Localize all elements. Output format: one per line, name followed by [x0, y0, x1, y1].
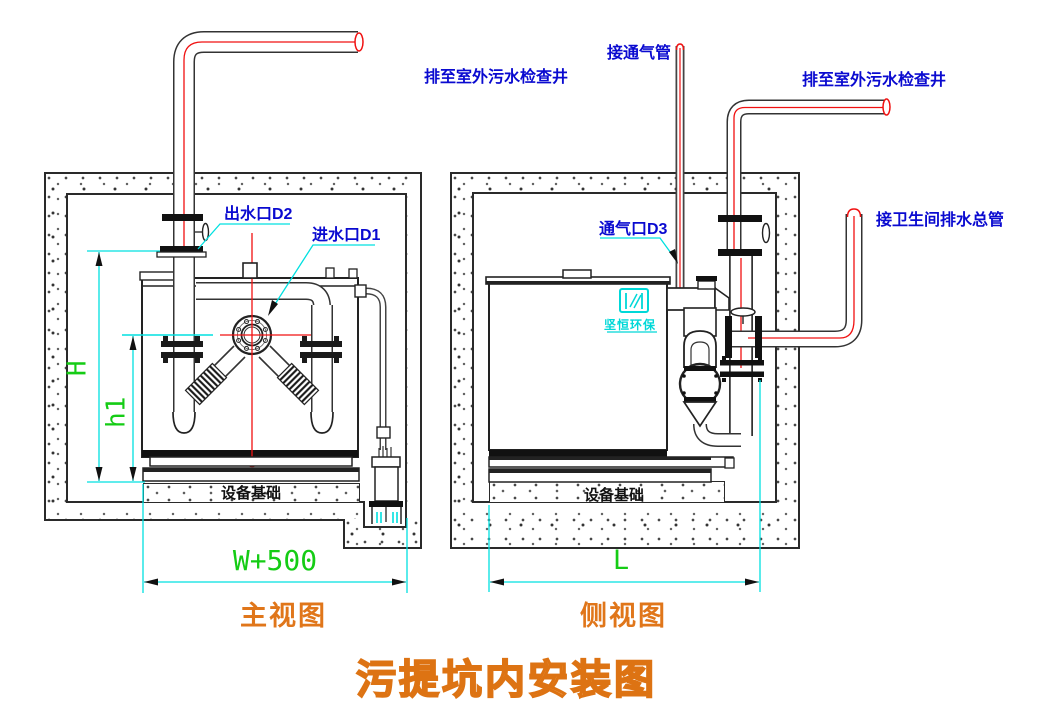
dim-h1-label: h1 — [103, 390, 132, 434]
front-inlet-label: 进水口D1 — [312, 227, 380, 245]
front-sump-pump — [355, 285, 403, 524]
side-foundation-label: 设备基础 — [584, 488, 644, 505]
side-valve-assembly — [667, 276, 729, 426]
drawing-title: 污提坑内安装图 — [356, 658, 657, 702]
dim-H-label: H — [64, 346, 93, 390]
brand-logo-text: 坚恒环保 — [604, 316, 656, 333]
side-vent-pipe — [677, 44, 684, 308]
front-outlet-label: 出水口D2 — [224, 206, 292, 224]
side-view-caption: 侧视图 — [580, 602, 667, 632]
side-vent-port-label: 通气口D3 — [599, 221, 667, 239]
front-view-caption: 主视图 — [240, 602, 327, 632]
side-vent-connect-label: 接通气管 — [607, 45, 671, 63]
dim-width-label: W+500 — [210, 546, 340, 577]
drawing-linework — [0, 0, 1041, 713]
side-toilet-main-label: 接卫生间排水总管 — [876, 212, 1004, 230]
side-outfall-label: 排至室外污水检查井 — [802, 72, 946, 90]
front-tank-vent-stub — [243, 263, 257, 278]
front-foundation-label: 设备基础 — [221, 486, 281, 503]
front-base-frame — [143, 457, 359, 481]
dim-length-label: L — [606, 546, 636, 576]
installation-drawing: 排至室外污水检查井 出水口D2 进水口D1 接通气管 排至室外污水检查井 通气口… — [0, 0, 1041, 713]
front-outfall-label: 排至室外污水检查井 — [424, 69, 568, 87]
front-tank-small-stub — [326, 268, 334, 278]
